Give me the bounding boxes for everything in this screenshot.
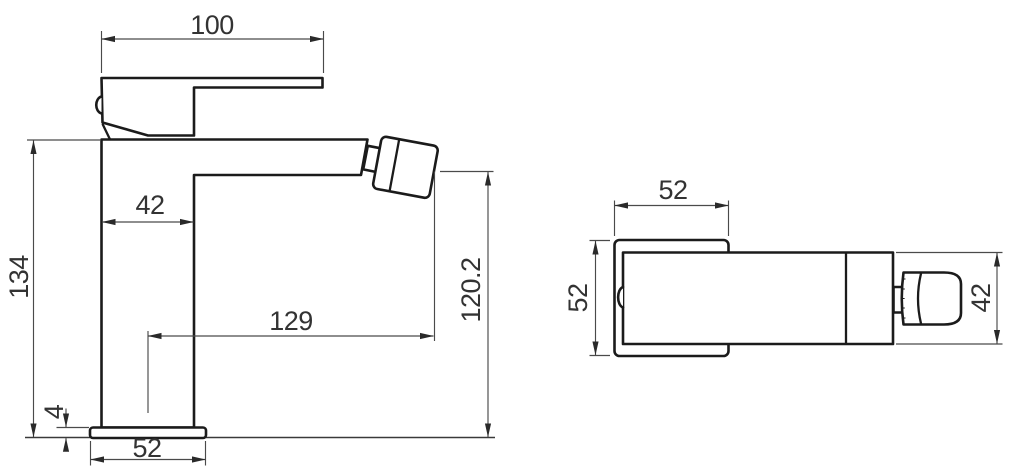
aerator-top	[902, 273, 961, 325]
dim-label-100: 100	[190, 10, 234, 40]
handle-skirt-line	[103, 125, 110, 140]
dim-top-body-width: 52	[615, 175, 729, 236]
dim-base-thickness: 4	[39, 404, 89, 448]
aerator-side	[372, 136, 438, 199]
dim-label-42-side: 42	[135, 190, 164, 220]
dim-label-52-base: 52	[132, 433, 161, 463]
technical-drawing-page: 100 42 134 129 120.2	[0, 0, 1024, 475]
dim-label-52-left: 52	[563, 283, 593, 312]
faucet-body-top	[623, 253, 893, 345]
dim-label-129: 129	[269, 306, 313, 336]
dim-label-4: 4	[39, 404, 69, 419]
side-view: 100 42 134 129 120.2	[4, 10, 495, 466]
lever-handle-side	[102, 78, 323, 136]
dim-total-height: 134	[4, 140, 100, 437]
set-screw-bump-side	[96, 97, 101, 114]
top-view: 52 52 42	[563, 175, 1003, 356]
dim-label-134: 134	[4, 255, 34, 299]
dim-label-52-top: 52	[658, 175, 687, 205]
set-screw-bump-top	[618, 287, 623, 308]
dim-handle-width: 100	[102, 10, 324, 73]
bidet-mixer-technical-drawing: 100 42 134 129 120.2	[0, 0, 1024, 475]
dim-top-body-depth: 52	[563, 241, 610, 356]
dim-spout-height: 120.2	[440, 172, 494, 438]
faucet-body-side	[102, 140, 368, 428]
dim-label-42-right: 42	[966, 283, 996, 312]
dim-label-120-2: 120.2	[456, 257, 486, 322]
